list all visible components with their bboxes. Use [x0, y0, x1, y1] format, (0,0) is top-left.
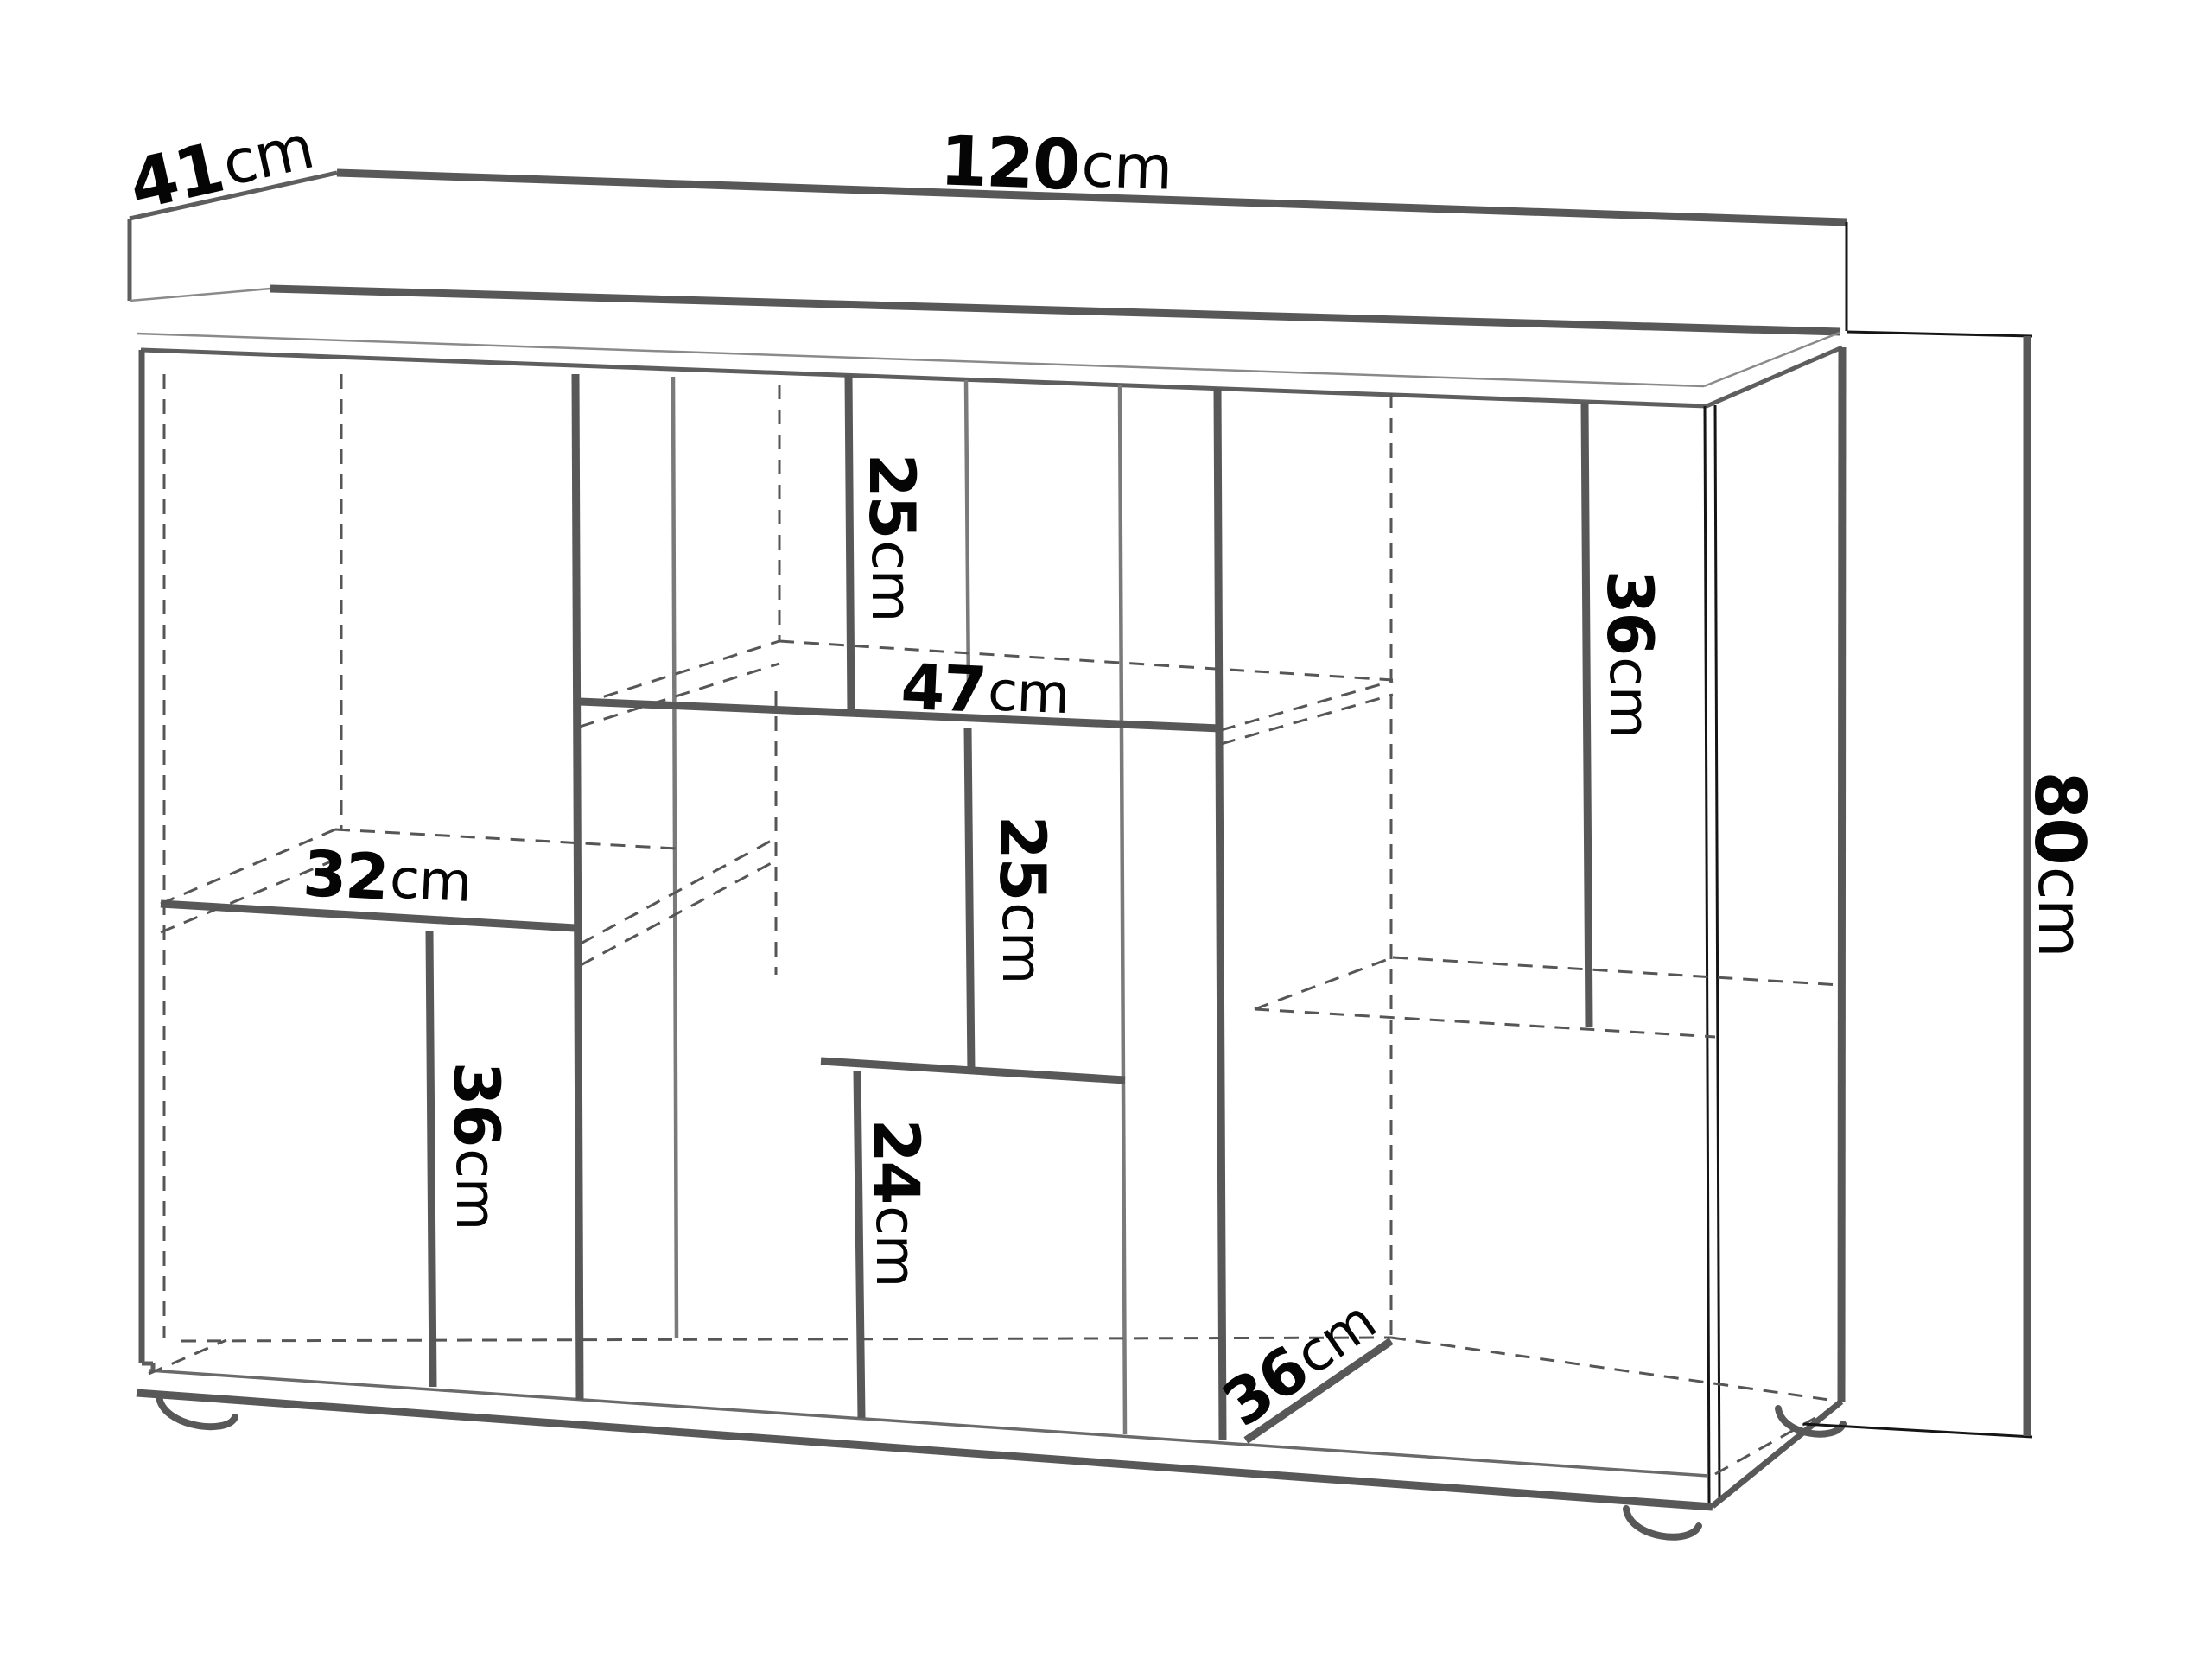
- furniture-dimension-diagram: 41cm 120cm 80cm 25cm 47cm 25cm 32cm 36cm…: [0, 0, 2212, 1659]
- divider-center-back-edge: [1120, 385, 1125, 1434]
- bottom-inner-floor-edge: [149, 1370, 1708, 1476]
- hidden-right-shelf-front: [1255, 1009, 1715, 1037]
- divider-left-full: [575, 374, 580, 1400]
- divider-36cm-right: [1585, 403, 1589, 1027]
- right-front-inner-edge: [1705, 406, 1709, 1504]
- bottom-outer-edge: [137, 1393, 1713, 1507]
- right-front-outer-edge: [1715, 405, 1719, 1502]
- hidden-floor-left-diag: [149, 1340, 226, 1374]
- dimension-labels: 41cm 120cm 80cm 25cm 47cm 25cm 32cm 36cm…: [122, 106, 2101, 1440]
- back-strip-bottom-edge: [130, 289, 270, 301]
- hidden-mid-depth-bottom: [581, 861, 776, 965]
- label-top-compartment-25cm: 25cm: [855, 454, 929, 622]
- right-bottom-slope-edge: [1713, 1402, 1841, 1506]
- divider-36cm-left: [429, 931, 433, 1387]
- label-left-divider-36cm: 36cm: [440, 1062, 513, 1230]
- divider-left-back-edge: [673, 377, 677, 1338]
- top-panel: [137, 289, 1842, 406]
- height-extension-top: [1847, 332, 2032, 336]
- divider-25cm-top: [849, 375, 851, 714]
- label-width-120cm: 120cm: [938, 120, 1173, 208]
- divider-center-full: [1217, 388, 1223, 1440]
- label-right-divider-36cm: 36cm: [1593, 570, 1667, 739]
- label-height-80cm: 80cm: [2020, 771, 2101, 957]
- hidden-shelf47-end-top: [1221, 681, 1393, 730]
- label-middle-compartment-25cm: 25cm: [986, 816, 1059, 984]
- shelves: [161, 702, 1391, 1440]
- hidden-floor-back-right: [1391, 1338, 1841, 1402]
- hidden-shelf47-back-edge: [779, 641, 1393, 680]
- hidden-shelf47-end-bottom: [1221, 695, 1393, 744]
- top-panel-back-edge: [270, 289, 1840, 332]
- label-depth-41cm: 41cm: [122, 106, 321, 225]
- sideboard-drawing: 41cm 120cm 80cm 25cm 47cm 25cm 32cm 36cm…: [0, 0, 2212, 1659]
- hidden-right-shelf-back: [1393, 957, 1840, 985]
- label-bottom-divider-24cm: 24cm: [860, 1119, 933, 1287]
- label-left-shelf-32cm: 32cm: [302, 836, 474, 918]
- front-right-foot: [1626, 1509, 1699, 1537]
- divider-25cm-middle: [968, 728, 971, 1073]
- hidden-mid-depth-top: [581, 838, 776, 944]
- right-back-outer-edge: [1841, 347, 1842, 1402]
- hidden-right-shelf-depth: [1255, 957, 1393, 1009]
- divider-25cm-top-back-edge: [966, 380, 969, 691]
- hidden-floor-back-edge: [181, 1338, 1391, 1341]
